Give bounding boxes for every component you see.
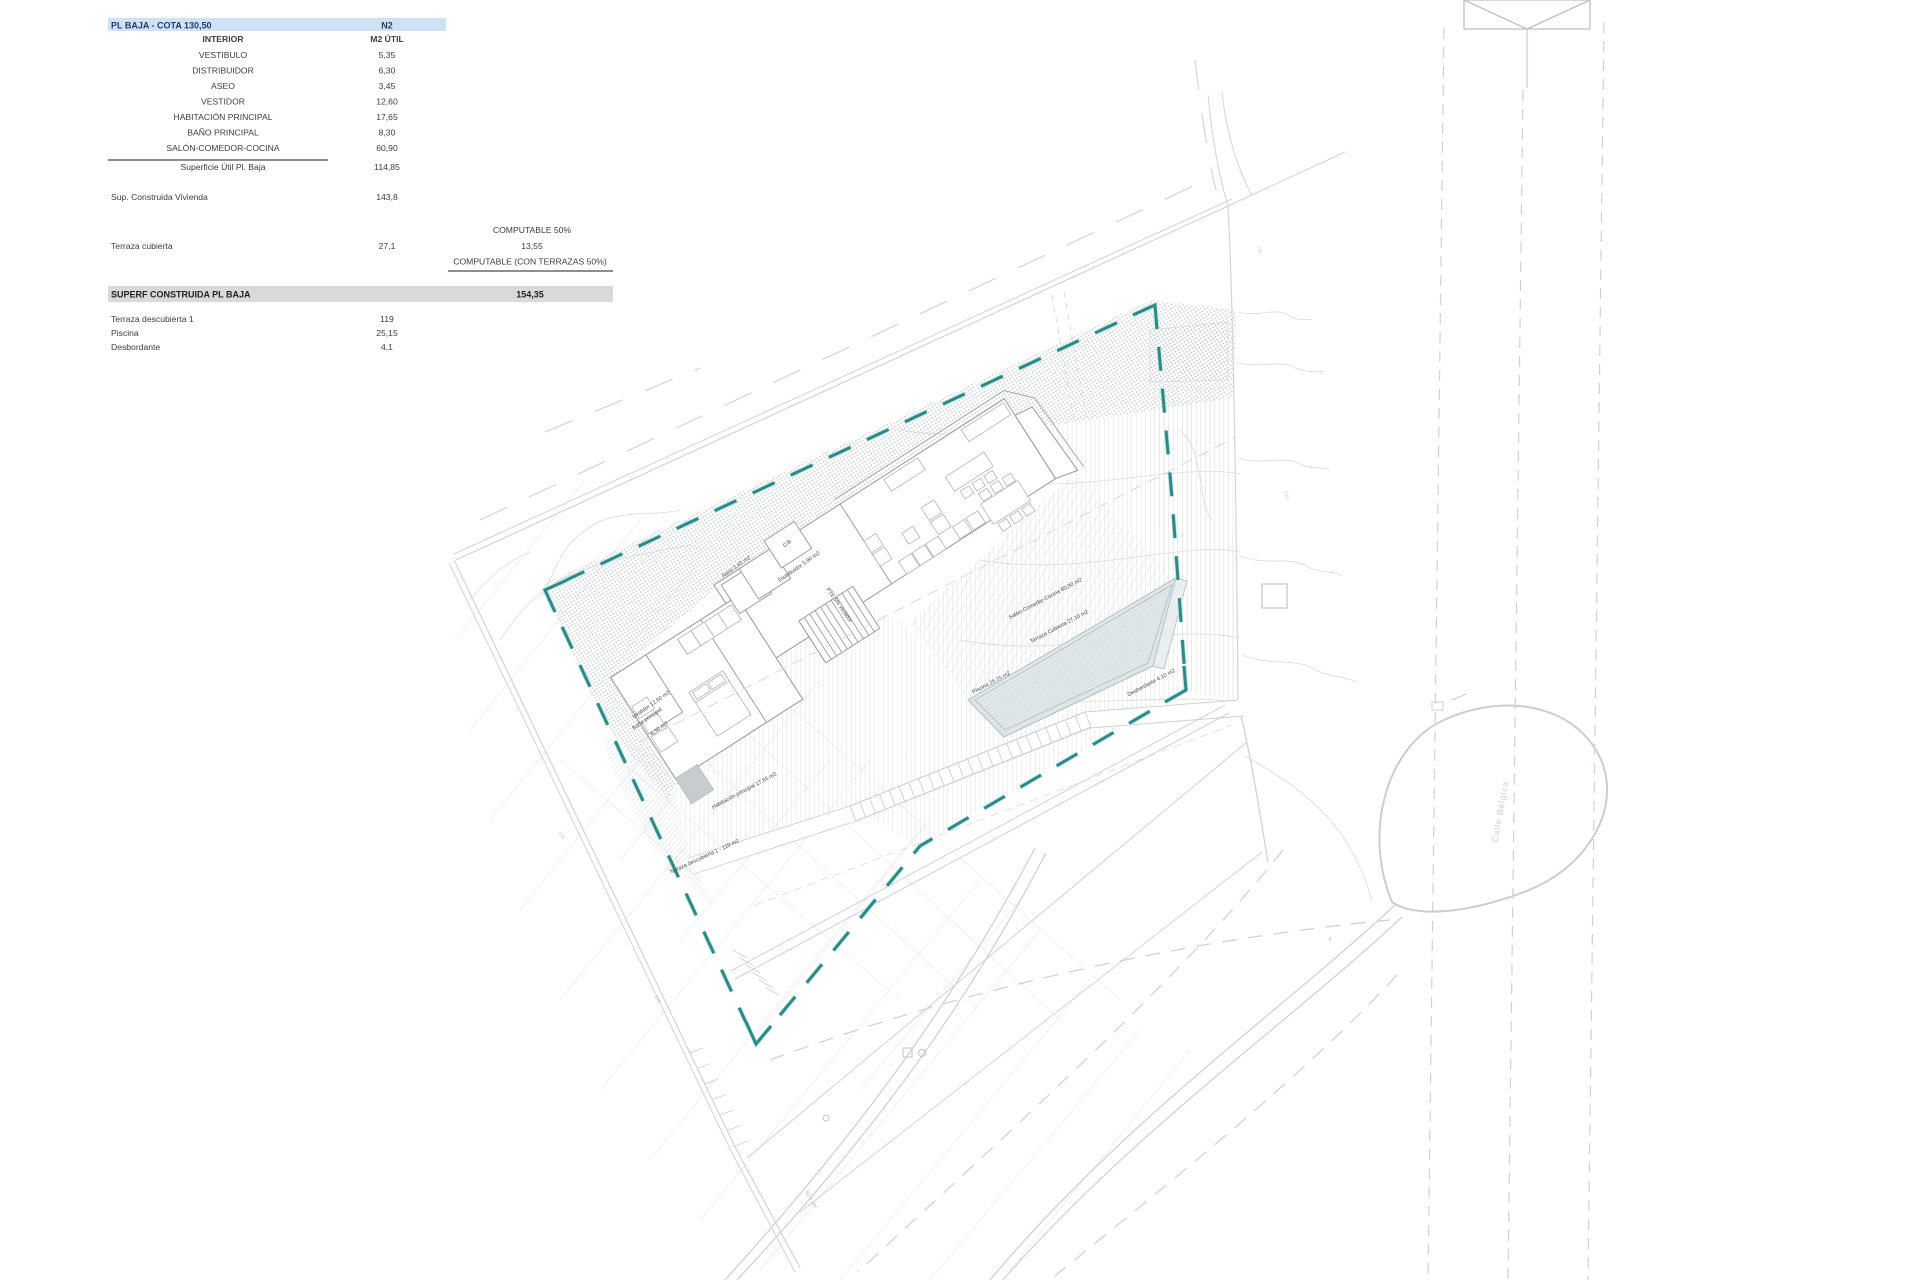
svg-text:4: 4 [1329,937,1332,943]
svg-text:25,15: 25,15 [376,328,398,338]
svg-text:Terraza descubierta 1: Terraza descubierta 1 [111,314,194,324]
svg-text:3,45: 3,45 [379,81,396,91]
svg-text:COMPUTABLE 50%: COMPUTABLE 50% [493,225,572,235]
svg-text:8,30: 8,30 [379,128,396,138]
svg-text:Piscina: Piscina [111,328,139,338]
svg-text:5,35: 5,35 [379,50,396,60]
svg-text:Superficie Útil Pl. Baja: Superficie Útil Pl. Baja [180,162,265,172]
svg-text:SUPERF CONSTRUIDA PL BAJA: SUPERF CONSTRUIDA PL BAJA [111,290,251,300]
svg-text:HABITACIÓN PRINCIPAL: HABITACIÓN PRINCIPAL [173,112,272,122]
svg-text:PL BAJA - COTA 130,50: PL BAJA - COTA 130,50 [111,21,212,31]
svg-text:BAÑO PRINCIPAL: BAÑO PRINCIPAL [187,128,259,138]
svg-text:27,1: 27,1 [379,241,396,251]
svg-text:Terraza cubierta: Terraza cubierta [111,241,173,251]
svg-text:SALÓN-COMEDOR-COCINA: SALÓN-COMEDOR-COCINA [166,143,279,153]
svg-text:143,8: 143,8 [376,192,398,202]
svg-text:M2 ÚTIL: M2 ÚTIL [370,33,403,44]
svg-text:N2: N2 [381,21,393,31]
svg-text:4,1: 4,1 [381,342,393,352]
svg-text:6,30: 6,30 [379,66,396,76]
svg-text:COMPUTABLE (CON TERRAZAS 50%): COMPUTABLE (CON TERRAZAS 50%) [453,257,607,267]
svg-text:Sup. Construida Vivienda: Sup. Construida Vivienda [111,192,208,202]
svg-text:VESTIBULO: VESTIBULO [199,50,248,60]
svg-text:ASEO: ASEO [211,81,235,91]
svg-text:114,85: 114,85 [374,162,400,172]
svg-text:60,90: 60,90 [376,143,398,153]
svg-text:DISTRIBUIDOR: DISTRIBUIDOR [192,66,254,76]
svg-text:119: 119 [380,314,394,324]
svg-text:VESTIDOR: VESTIDOR [201,97,245,107]
svg-text:12,60: 12,60 [376,97,398,107]
svg-text:Desbordante: Desbordante [111,342,160,352]
svg-text:13,55: 13,55 [521,241,543,251]
svg-text:154,35: 154,35 [516,290,544,300]
svg-text:INTERIOR: INTERIOR [202,34,244,44]
svg-text:17,65: 17,65 [376,112,398,122]
